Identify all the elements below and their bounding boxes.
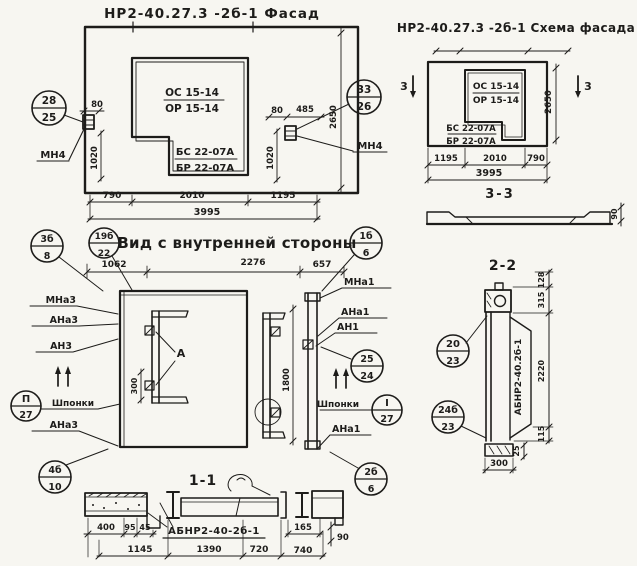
- s22-dim-115: 115: [537, 425, 546, 442]
- callout-value: 19б: [95, 231, 114, 242]
- label-ana1: АНа1: [341, 307, 369, 318]
- schema-title: НР2-40.27.3 -2б-1 Схема фасада: [397, 21, 635, 35]
- inner-view-title: Вид с внутренней стороны: [117, 234, 356, 252]
- callout-24b-23: 24б 23: [432, 401, 486, 438]
- detail-a-label: А: [177, 347, 186, 360]
- callout-value: 27: [380, 414, 393, 425]
- callout-3b-8: 3б 8: [31, 230, 103, 291]
- callout-value: П: [22, 394, 30, 405]
- callout-value: 25: [42, 112, 57, 124]
- callout-4b-10: 4б 10: [39, 449, 108, 493]
- label-ana3-2: АНа3: [50, 420, 78, 431]
- callout-value: 6: [363, 248, 370, 259]
- inner-dim-2276: 2276: [240, 258, 265, 268]
- s22-dim-25: 25: [512, 445, 521, 457]
- s11-dim-720: 720: [250, 545, 269, 555]
- section-3-3-profile: 90: [427, 203, 624, 226]
- callout-value: 3б: [40, 234, 54, 245]
- inner-edge-strip: [303, 293, 320, 449]
- section-1-marker-right: [333, 368, 349, 388]
- label-mna1: МНа1: [344, 277, 374, 288]
- facade-dim-80-left: 80: [91, 100, 103, 110]
- facade-dim-790: 790: [103, 191, 122, 201]
- facade-anchor-right-label: МН4: [357, 141, 382, 152]
- callout-20-23: 20 23: [437, 316, 487, 367]
- callout-value: 22: [98, 249, 111, 259]
- callout-value: 24: [360, 371, 374, 382]
- s11-dim-90: 90: [337, 533, 349, 543]
- section-marker-label: 3: [584, 80, 592, 93]
- facade-anchor-right-symbol: [285, 126, 296, 140]
- facade-dim-2010: 2010: [179, 191, 204, 201]
- schema-section-marker-left: 3: [400, 76, 416, 98]
- section-2-2-body: [485, 283, 531, 456]
- facade-title: НР2-40.27.3 -2б-1 Фасад: [104, 6, 320, 22]
- s11-dim-165: 165: [294, 523, 312, 533]
- callout-value: 8: [44, 251, 51, 262]
- facade-window-mark-top: ОС 15-14: [165, 87, 219, 99]
- inner-channel-right: [255, 313, 285, 438]
- callout-p-27: П 27: [11, 391, 41, 421]
- label-shponki-left: Шпонки: [52, 399, 94, 409]
- callout-value: 20: [446, 339, 460, 350]
- callout-value: 2б: [364, 467, 378, 478]
- drawing-sheet: НР2-40.27.3 -2б-1 Фасад ОС 15-14 ОР 15-1…: [0, 0, 637, 566]
- callout-25-24: 25 24: [321, 347, 383, 382]
- label-shponki-right: Шпонки: [317, 400, 359, 410]
- schema-section-marker-right: 3: [575, 76, 592, 98]
- schema-window-mark-bottom: ОР 15-14: [473, 96, 519, 106]
- section-1-mar-left: [55, 366, 71, 386]
- section-2-2-part-label: АБНР2-40.2б-1: [513, 339, 524, 415]
- callout-value: 28: [42, 95, 57, 107]
- facade-dim-1020-left: 1020: [90, 146, 100, 170]
- inner-view: 3б 8 19б 22 Вид с внутренней стороны 106…: [11, 227, 402, 495]
- callout-value: 27: [19, 410, 32, 421]
- section-1-1-title: 1-1: [189, 473, 217, 489]
- s22-dim-128: 128: [537, 271, 546, 288]
- facade-callout-28-25: 28 25: [32, 91, 83, 125]
- inner-dim-1062: 1062: [101, 260, 126, 270]
- inner-dim-1800: 1800: [282, 368, 292, 392]
- s11-dim-95: 95: [124, 523, 136, 532]
- schema-sill-mark-top: БС 22-07А: [446, 124, 496, 134]
- schema-dim-1195: 1195: [434, 154, 458, 164]
- s22-dim-2220: 2220: [537, 359, 546, 382]
- callout-value: 10: [48, 482, 62, 493]
- facade-dim-3995: 3995: [194, 207, 220, 218]
- label-ana1-2: АНа1: [332, 424, 360, 435]
- schema-view: НР2-40.27.3 -2б-1 Схема фасада ОС 15-14 …: [397, 21, 635, 226]
- callout-value: 4б: [48, 465, 62, 476]
- inner-dim-300: 300: [130, 377, 139, 394]
- section-marker-label: 3: [400, 80, 408, 93]
- profile-dim-90: 90: [610, 208, 619, 220]
- callout-value: 23: [446, 356, 459, 367]
- section-2-2-title: 2-2: [489, 258, 517, 274]
- schema-sill-mark-bottom: БР 22-07А: [446, 137, 496, 147]
- label-an1: АН1: [337, 322, 359, 333]
- s11-dim-1390: 1390: [196, 545, 221, 555]
- callout-value: 6: [368, 484, 375, 495]
- facade-dim-2650: 2650: [329, 105, 339, 129]
- callout-value: 33: [357, 84, 372, 96]
- callout-value: 23: [441, 422, 454, 433]
- s11-dim-400: 400: [97, 523, 115, 533]
- section-1-1-part-label: АБНР2-40-2б-1: [168, 525, 260, 537]
- callout-value: I: [385, 398, 389, 409]
- section-1-1: 1-1 АБНР2-40-2б-1 400 95 45 16: [84, 473, 349, 559]
- callout-value: 24б: [438, 405, 458, 416]
- facade-dim-1020-right: 1020: [266, 146, 276, 170]
- s22-dim-315: 315: [537, 291, 546, 308]
- schema-dim-3995: 3995: [476, 168, 502, 179]
- label-mna3: МНа3: [46, 295, 76, 306]
- section-2-2: 2-2 АБНР2-40.2б-1 128 315 2220 115 25 30…: [432, 258, 553, 473]
- label-ana3: АНа3: [50, 315, 78, 326]
- label-an3: АН3: [50, 341, 72, 352]
- s11-dim-45: 45: [139, 523, 151, 532]
- facade-anchor-left-label: МН4: [40, 150, 65, 161]
- callout-2b-6: 2б 6: [330, 452, 387, 495]
- s11-dim-1145: 1145: [127, 545, 152, 555]
- facade-sill-mark-top: БС 22-07А: [176, 147, 234, 158]
- callout-value: 25: [360, 354, 373, 365]
- facade-window-mark-bottom: ОР 15-14: [165, 103, 219, 115]
- callout-i-27: I 27: [372, 395, 402, 425]
- facade-view: НР2-40.27.3 -2б-1 Фасад ОС 15-14 ОР 15-1…: [32, 6, 387, 222]
- schema-dim-2010: 2010: [483, 154, 507, 164]
- schema-window-mark-top: ОС 15-14: [473, 82, 519, 92]
- facade-sill-mark-bottom: БР 22-07А: [176, 163, 234, 174]
- facade-dim-485: 485: [296, 105, 314, 115]
- s11-dim-740: 740: [294, 546, 313, 556]
- schema-dim-2650: 2650: [544, 90, 554, 114]
- inner-panel-outline: [120, 291, 247, 447]
- drawing-svg: НР2-40.27.3 -2б-1 Фасад ОС 15-14 ОР 15-1…: [0, 0, 637, 566]
- callout-value: 26: [357, 101, 372, 113]
- inner-dim-657: 657: [313, 260, 332, 270]
- facade-dim-80-right: 80: [271, 106, 283, 116]
- callout-value: 1б: [359, 231, 373, 242]
- facade-dim-1195: 1195: [270, 191, 295, 201]
- s22-dim-300: 300: [490, 459, 508, 469]
- section-3-3-label: 3-3: [485, 187, 515, 202]
- schema-dim-790: 790: [527, 154, 545, 164]
